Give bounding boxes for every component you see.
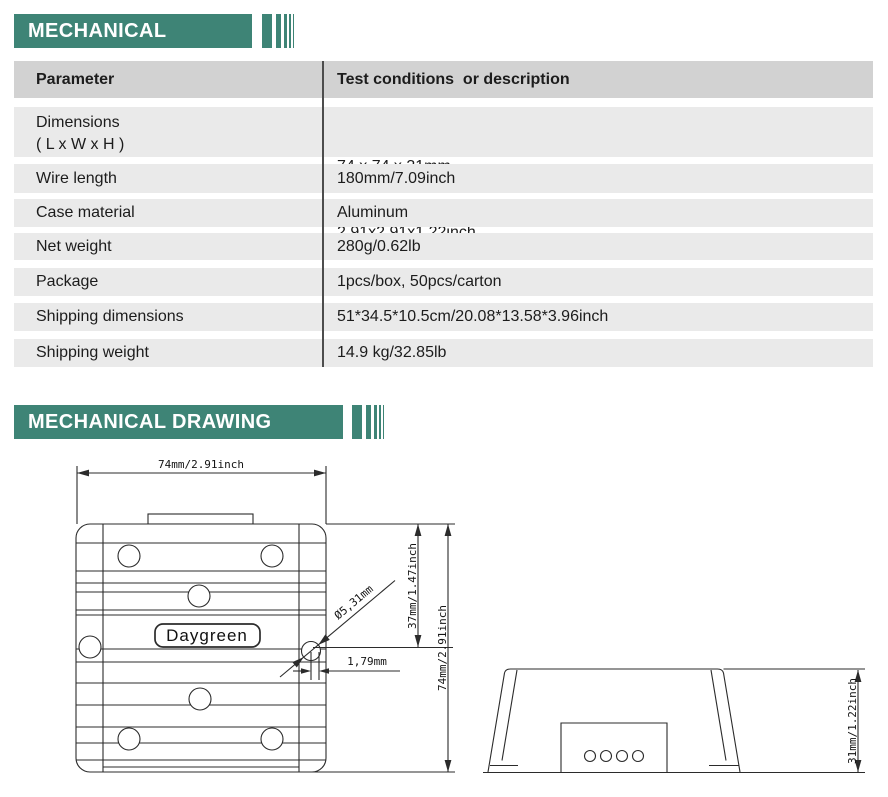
- case-top-tab: [148, 514, 253, 524]
- dim-side-height: 74mm/2.91inch: [436, 605, 449, 691]
- dim-case-height: 31mm/1.22inch: [846, 678, 859, 764]
- dim-hole-horizontal: 1,79mm: [347, 655, 387, 668]
- side-view: 31mm/1.22inch: [483, 669, 865, 773]
- dim-top-width: 74mm/2.91inch: [158, 458, 244, 471]
- case-outline: [76, 524, 326, 772]
- connector-block: [561, 723, 667, 772]
- spec-sheet-page: MECHANICAL Parameter Test conditions or …: [0, 0, 888, 797]
- connector-terminals: [585, 751, 644, 762]
- top-view: 74mm/2.91inch: [76, 458, 455, 772]
- mechanical-drawing: 74mm/2.91inch: [0, 0, 888, 797]
- case-profile: [488, 669, 740, 772]
- dim-hole-vertical: 37mm/1.47inch: [406, 543, 419, 629]
- brand-label: Daygreen: [166, 626, 248, 645]
